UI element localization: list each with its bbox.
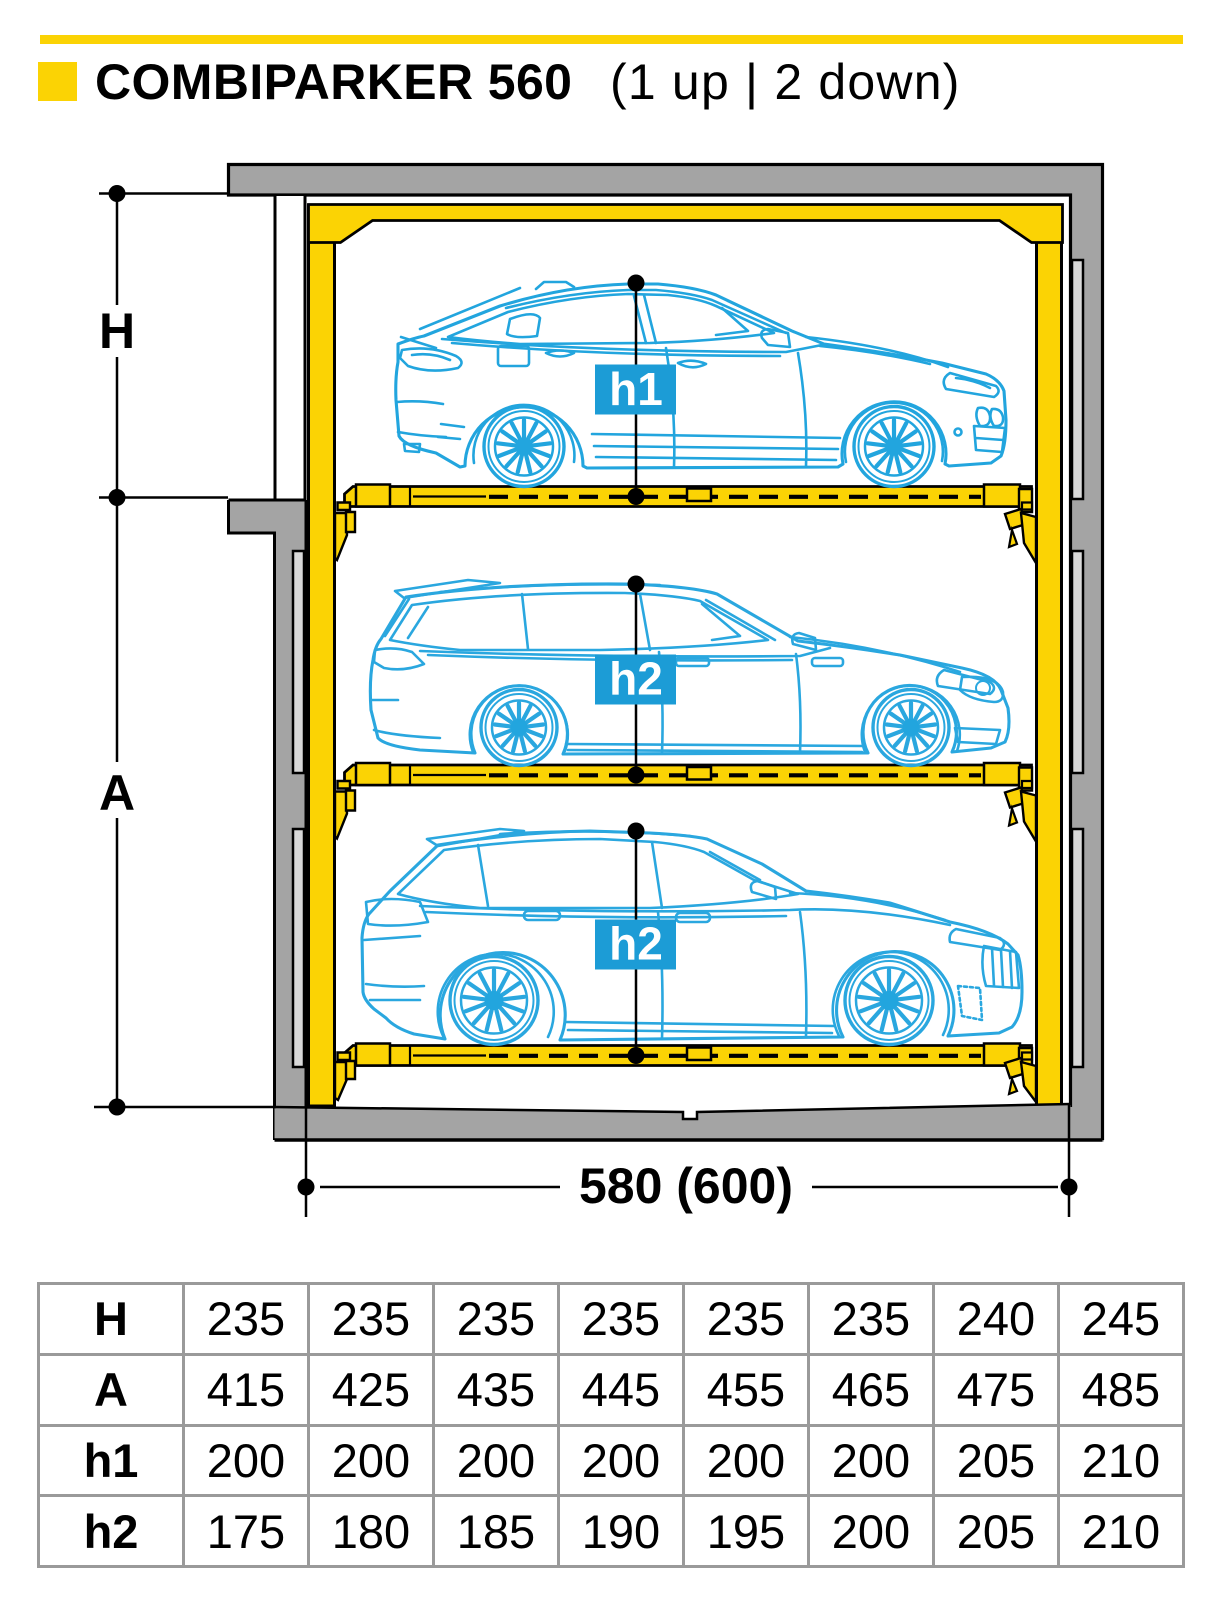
svg-text:h2: h2 [609, 918, 663, 970]
svg-text:h1: h1 [609, 363, 663, 415]
svg-text:H: H [99, 303, 135, 359]
svg-text:580 (600): 580 (600) [579, 1158, 793, 1214]
svg-text:h2: h2 [609, 653, 663, 705]
svg-text:A: A [99, 765, 135, 821]
